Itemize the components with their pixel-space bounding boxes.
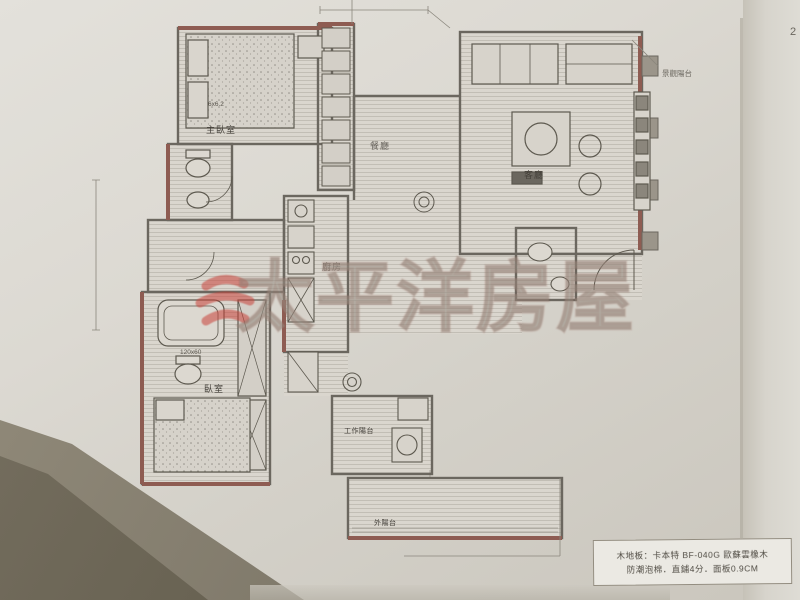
label-outer-balcony: 外陽台 [374, 518, 397, 527]
toilet-tank [186, 150, 210, 158]
label-dining: 餐廳 [370, 140, 390, 151]
sofa [472, 44, 558, 84]
closet-column [322, 28, 350, 186]
spec-line-1: 木地板：卡本特 BF-040G 歐蘇雲橡木 [617, 548, 769, 562]
nightstand [298, 36, 324, 58]
spec-line-2: 防潮泡棉．直鋪4分．面板0.9CM [627, 562, 759, 575]
label-living: 客廳 [524, 169, 544, 180]
laundry-sink [398, 398, 428, 420]
label-view-balcony: 景觀陽台 [662, 68, 692, 78]
label-bedroom2: 臥室 [204, 383, 224, 394]
paper-bottom-shadow [250, 585, 670, 600]
toilet-icon [175, 364, 201, 384]
photo-of-floor-plan: 主臥室 6x6.2 餐廳 客廳 廚房 臥室 120x60 工作陽台 外陽台 景觀… [0, 0, 800, 600]
toilet-icon [186, 159, 210, 177]
label-work-balcony: 工作陽台 [344, 426, 374, 435]
toilet-tank [176, 356, 200, 364]
label-bath-dim: 120x60 [180, 349, 202, 356]
label-master-bed-dim: 6x6.2 [208, 101, 224, 108]
table [512, 112, 570, 166]
pillow [156, 400, 184, 420]
sink-icon [187, 192, 209, 208]
corner-page-mark: 2 [790, 26, 796, 38]
pillow [188, 40, 208, 76]
material-spec-box: 木地板：卡本特 BF-040G 歐蘇雲橡木 防潮泡棉．直鋪4分．面板0.9CM [593, 538, 792, 586]
pillow [188, 82, 208, 118]
label-master-bedroom: 主臥室 [206, 124, 236, 135]
watermark-brand-text: 太平洋房屋 [236, 258, 636, 336]
